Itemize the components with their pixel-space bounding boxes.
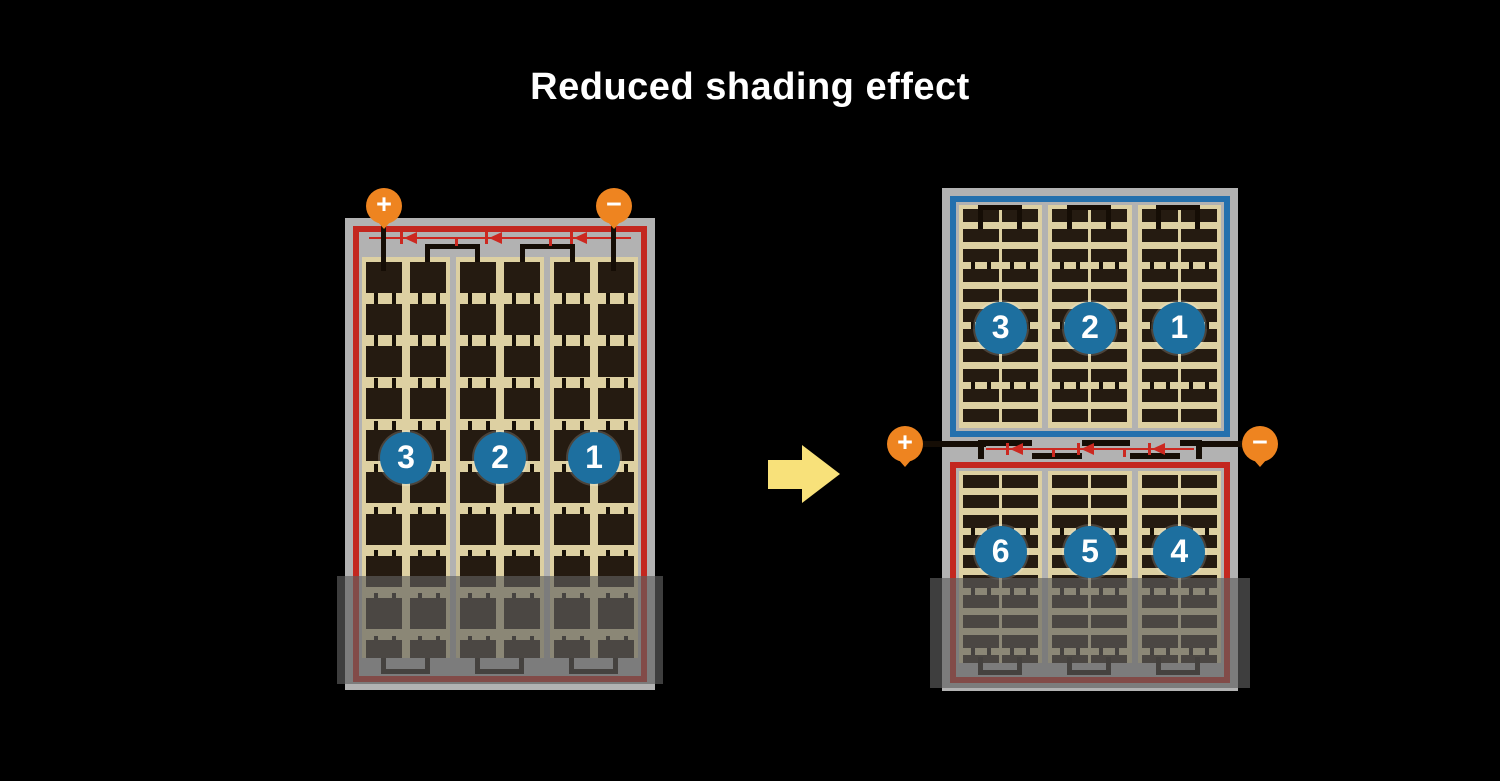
string-number-badge: 2 — [1064, 302, 1116, 354]
left-bypass-diode-line — [369, 237, 631, 239]
diode-icon — [574, 232, 587, 244]
diode-tap — [455, 237, 458, 246]
right-negative-terminal-icon: − — [1242, 426, 1278, 462]
diode-tap — [549, 237, 552, 246]
string-number-badge: 5 — [1064, 526, 1116, 578]
string-number-badge: 3 — [380, 432, 432, 484]
right-string-1: 1 — [1138, 205, 1221, 428]
right-shading-overlay — [930, 578, 1250, 688]
string-number-badge: 1 — [1153, 302, 1205, 354]
left-shading-overlay — [337, 576, 663, 684]
junction-busbar — [1032, 453, 1082, 459]
busbar-bridge — [425, 244, 480, 262]
right-positive-terminal-icon: + — [887, 426, 923, 462]
arrow-shaft — [768, 460, 802, 489]
busbar-bridge — [520, 244, 575, 262]
busbar-bridge — [1156, 205, 1200, 229]
minus-icon: − — [606, 189, 622, 219]
half-panel-top: 3 2 1 — [950, 196, 1230, 437]
right-string-2: 2 — [1048, 205, 1131, 428]
left-positive-terminal-icon: + — [366, 188, 402, 224]
string-number-badge: 4 — [1153, 526, 1205, 578]
diode-icon — [1010, 443, 1023, 455]
junction-box-strip — [950, 437, 1230, 462]
arrow-head — [802, 445, 840, 503]
string-number-badge: 6 — [975, 526, 1027, 578]
right-positive-lead — [920, 441, 986, 447]
arrow-right-icon — [768, 445, 842, 503]
string-number-badge: 1 — [568, 432, 620, 484]
left-negative-terminal-icon: − — [596, 188, 632, 224]
diode-icon — [1152, 443, 1165, 455]
string-number-badge: 2 — [474, 432, 526, 484]
diode-tap — [1052, 448, 1055, 457]
right-negative-lead — [1196, 441, 1248, 447]
diagram-stage: Reduced shading effect + − 3 — [0, 0, 1500, 781]
diode-icon — [1081, 443, 1094, 455]
diode-tap — [1123, 448, 1126, 457]
right-top-cell-area: 3 2 1 — [959, 205, 1221, 428]
right-bypass-diode-line — [986, 448, 1194, 450]
busbar-bridge — [1067, 205, 1111, 229]
string-number-badge: 3 — [975, 302, 1027, 354]
busbar-bridge — [978, 205, 1022, 229]
page-title: Reduced shading effect — [0, 66, 1500, 109]
plus-icon: + — [897, 427, 913, 457]
diode-icon — [489, 232, 502, 244]
plus-icon: + — [376, 189, 392, 219]
diode-icon — [404, 232, 417, 244]
minus-icon: − — [1252, 427, 1268, 457]
right-string-3: 3 — [959, 205, 1042, 428]
